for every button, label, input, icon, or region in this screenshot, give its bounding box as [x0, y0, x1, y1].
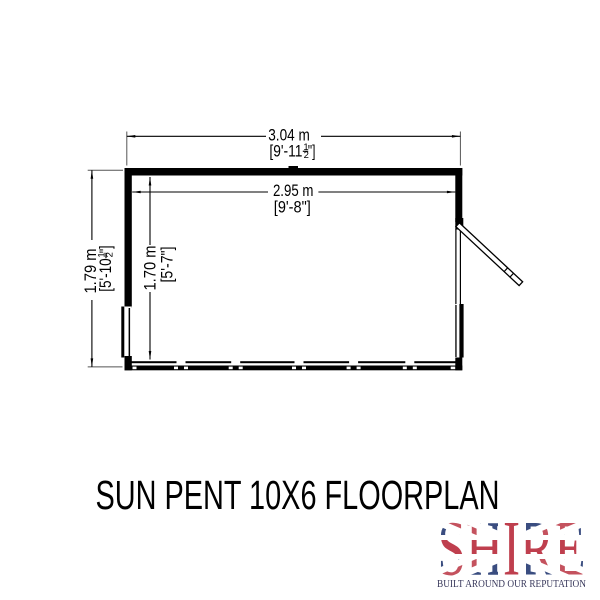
svg-text:1.70 m: 1.70 m: [142, 246, 160, 291]
svg-text:[9'-8"]: [9'-8"]: [274, 199, 311, 217]
svg-text:2.95 m: 2.95 m: [273, 182, 314, 200]
svg-text:"]: "]: [97, 246, 115, 254]
svg-text:[5'-10: [5'-10: [97, 258, 115, 292]
svg-text:"]: "]: [308, 143, 316, 161]
svg-text:[9'-11: [9'-11: [269, 143, 302, 161]
svg-text:BUILT AROUND OUR REPUTATION: BUILT AROUND OUR REPUTATION: [437, 579, 587, 590]
svg-text:[5'-7"]: [5'-7"]: [158, 247, 176, 283]
